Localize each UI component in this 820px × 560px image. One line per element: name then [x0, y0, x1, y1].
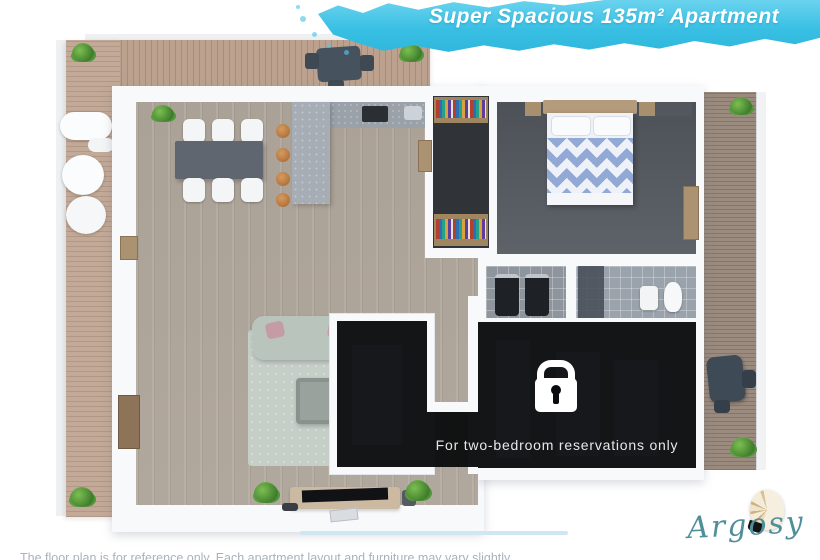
nightstand — [639, 102, 655, 116]
shower — [578, 266, 604, 318]
dining-chair — [183, 119, 205, 143]
spray-dot — [296, 5, 300, 9]
bistro-table — [706, 354, 747, 404]
wall-art — [683, 186, 699, 240]
dining-chair — [212, 178, 234, 202]
wall-frame — [418, 140, 432, 172]
outdoor-chair — [305, 53, 319, 69]
pillow — [593, 116, 631, 136]
lounge-chair — [66, 196, 106, 234]
bar-stool — [276, 124, 290, 138]
dining-chair — [212, 119, 234, 143]
plant-icon — [70, 488, 94, 507]
washer — [495, 274, 519, 316]
dining-chair — [183, 178, 205, 202]
right-balcony-railing — [756, 92, 766, 470]
floor-plan-image: For two-bedroom reservations only Super … — [0, 0, 820, 560]
outdoor-chair — [360, 55, 374, 71]
dining-table — [175, 141, 263, 179]
right-balcony — [704, 92, 757, 470]
stove — [362, 106, 388, 122]
bed-headboard — [543, 100, 637, 114]
bath-sink — [640, 286, 658, 310]
argosy-logo: Argosy — [678, 486, 814, 556]
lock-keyhole-stem — [553, 393, 559, 404]
lounge-cushion — [88, 138, 114, 152]
plant-icon — [254, 483, 278, 503]
bistro-chair — [742, 370, 756, 388]
outdoor-dining-table — [316, 46, 362, 83]
toilet — [664, 282, 682, 312]
bath-wall — [566, 266, 576, 318]
bistro-chair — [714, 400, 730, 413]
plant-icon — [730, 98, 752, 115]
spray-dot — [312, 32, 317, 37]
lounge-table — [60, 112, 112, 140]
spray-dot — [327, 44, 331, 48]
books-row — [436, 219, 486, 239]
pillow — [551, 116, 591, 136]
spray-dot — [300, 16, 306, 22]
locked-caption: For two-bedroom reservations only — [407, 437, 707, 453]
wall-frame — [120, 236, 138, 260]
plant-icon — [72, 44, 94, 62]
bar-stool — [276, 172, 290, 186]
dryer — [525, 274, 549, 316]
left-deck-railing — [56, 40, 66, 516]
spray-dot — [344, 50, 349, 55]
blue-underline-swash — [300, 531, 568, 535]
bed-foot-fold — [547, 193, 633, 205]
bar-stool — [276, 148, 290, 162]
dining-chair — [241, 119, 263, 143]
wall-mirror — [118, 395, 140, 449]
books-row — [436, 100, 486, 118]
slippers — [282, 503, 298, 511]
dining-chair — [241, 178, 263, 202]
nightstand — [525, 102, 541, 116]
hidden-furniture — [352, 345, 402, 445]
logo-text: Argosy — [677, 504, 815, 546]
plant-icon — [152, 106, 174, 122]
plant-icon — [731, 438, 755, 457]
kitchen-island — [292, 102, 330, 204]
corridor-end-wall — [427, 402, 478, 412]
bar-stool — [276, 193, 290, 207]
bed-blanket-chevron — [547, 138, 633, 196]
kitchen-sink — [404, 106, 422, 120]
disclaimer-text: The floor plan is for reference only. Ea… — [20, 551, 660, 560]
lounge-chair — [62, 155, 104, 195]
plant-icon — [406, 481, 430, 501]
banner-title: Super Spacious 135m² Apartment — [318, 5, 820, 29]
